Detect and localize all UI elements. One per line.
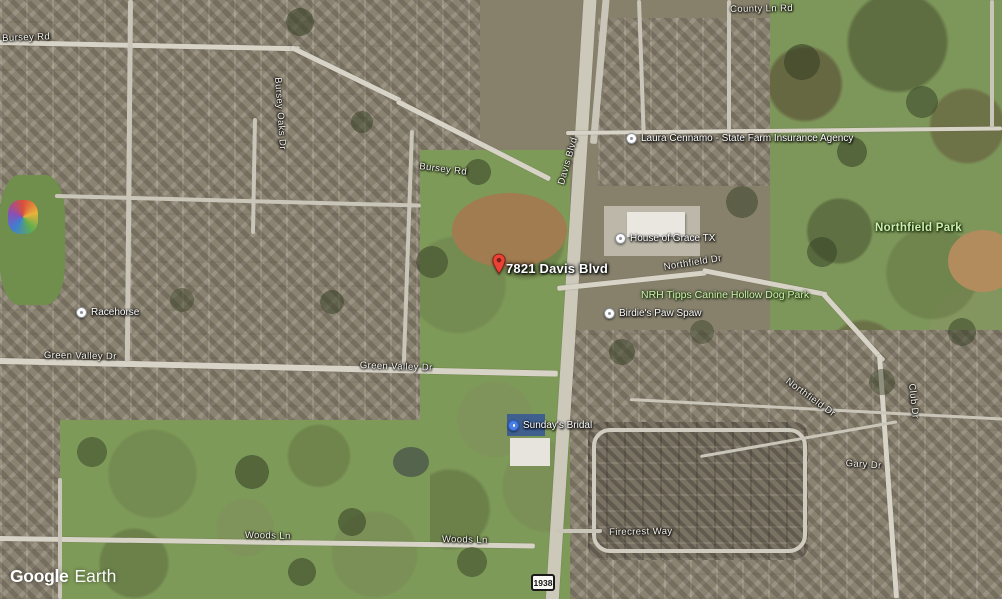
place-icon xyxy=(626,133,637,144)
watermark-brand: Google xyxy=(10,566,68,587)
road-east-edge xyxy=(990,0,994,128)
satellite-map[interactable]: Bursey Rd Bursey Rd County Ln Rd Davis B… xyxy=(0,0,1002,599)
park-label-tipps-canine-hollow: NRH Tipps Canine Hollow Dog Park xyxy=(641,289,809,301)
road-label-county-ln-rd: County Ln Rd xyxy=(730,3,793,15)
terrain-playground xyxy=(8,200,38,234)
terrain-dirt-lot xyxy=(452,193,567,268)
shopping-bag-icon xyxy=(508,420,519,431)
poi-label: Birdie's Paw Spaw xyxy=(619,308,702,319)
poi-paw-spaw[interactable]: Birdie's Paw Spaw xyxy=(604,308,702,319)
place-icon xyxy=(615,233,626,244)
road-label-firecrest-way: Firecrest Way xyxy=(609,526,673,538)
poi-label: House of Grace TX xyxy=(630,233,715,244)
road-label-bursey-rd-west: Bursey Rd xyxy=(2,31,50,44)
road-firecrest-entry xyxy=(556,529,602,533)
poi-house-of-grace[interactable]: House of Grace TX xyxy=(615,233,715,244)
poi-sundays-bridal[interactable]: Sunday's Bridal xyxy=(508,420,592,431)
road-label-woods-ln-west: Woods Ln xyxy=(245,530,291,542)
poi-label: Sunday's Bridal xyxy=(523,420,592,431)
poi-racehorse[interactable]: Racehorse xyxy=(76,307,139,318)
road-label-woods-ln-east: Woods Ln xyxy=(442,534,488,546)
road-label-green-valley-west: Green Valley Dr xyxy=(44,350,117,362)
road-northeast-street-2 xyxy=(727,0,731,130)
terrain-residential-northeast xyxy=(598,18,788,186)
route-number: 1938 xyxy=(534,578,553,588)
terrain-bridal-shop-building xyxy=(510,438,550,466)
watermark-product: Earth xyxy=(74,566,116,587)
park-label-northfield-park: Northfield Park xyxy=(875,222,962,234)
terrain-pond xyxy=(393,447,429,477)
marker-address-label: 7821 Davis Blvd xyxy=(506,261,608,276)
poi-label: Racehorse xyxy=(91,307,139,318)
google-earth-watermark: Google Earth xyxy=(10,566,116,587)
poi-label: Laura Cennamo - State Farm Insurance Age… xyxy=(641,133,853,144)
location-pin-icon[interactable] xyxy=(492,253,506,275)
poi-state-farm-agency[interactable]: Laura Cennamo - State Farm Insurance Age… xyxy=(626,133,853,144)
place-icon xyxy=(604,308,615,319)
route-shield-fm-1938: 1938 xyxy=(531,574,555,591)
place-icon xyxy=(76,307,87,318)
